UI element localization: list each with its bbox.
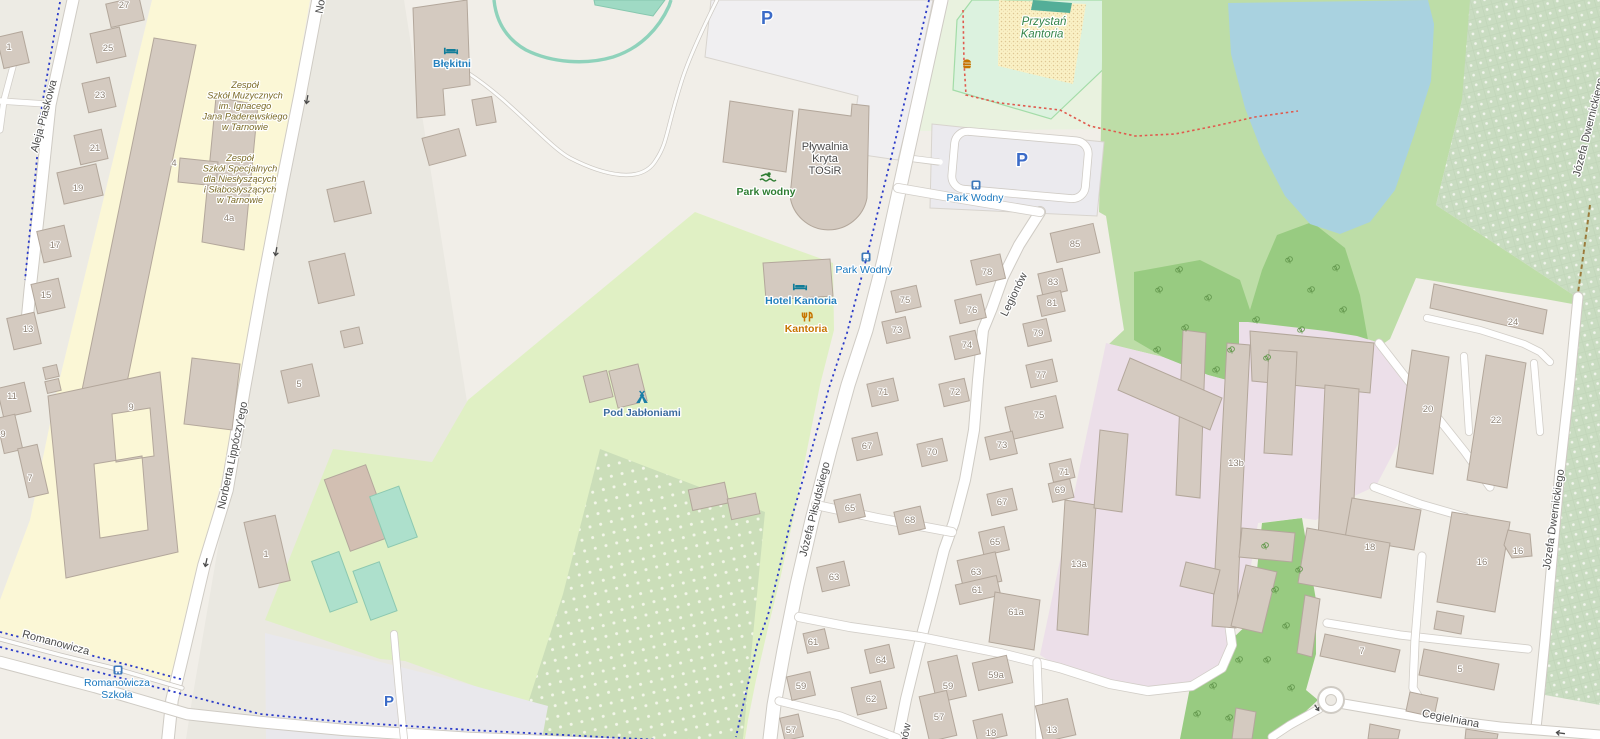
svg-text:Romanowicza: Romanowicza <box>84 677 150 689</box>
svg-text:24: 24 <box>1508 317 1519 328</box>
svg-text:59: 59 <box>796 681 807 692</box>
svg-text:11: 11 <box>7 391 17 402</box>
svg-text:18: 18 <box>986 728 997 739</box>
svg-text:59a: 59a <box>988 670 1005 681</box>
svg-text:w Tarnowie: w Tarnowie <box>217 195 263 205</box>
svg-text:73: 73 <box>997 440 1008 451</box>
svg-text:Błękitni: Błękitni <box>433 58 471 70</box>
svg-text:4: 4 <box>171 158 176 169</box>
svg-text:Przystań: Przystań <box>1022 16 1067 28</box>
svg-text:Hotel Kantoria: Hotel Kantoria <box>765 295 837 307</box>
svg-text:81: 81 <box>1047 298 1058 309</box>
svg-text:Kryta: Kryta <box>812 153 839 165</box>
svg-text:61a: 61a <box>1008 607 1025 618</box>
svg-text:57: 57 <box>786 725 797 736</box>
svg-text:70: 70 <box>927 447 938 458</box>
svg-text:61: 61 <box>808 637 819 648</box>
svg-text:57: 57 <box>934 712 945 723</box>
svg-text:im. Ignacego: im. Ignacego <box>219 101 272 111</box>
svg-text:61: 61 <box>972 585 983 596</box>
svg-text:85: 85 <box>1070 239 1081 250</box>
svg-text:21: 21 <box>90 143 101 154</box>
svg-text:1: 1 <box>6 42 11 53</box>
svg-text:23: 23 <box>95 90 106 101</box>
svg-text:67: 67 <box>997 497 1008 508</box>
svg-text:73: 73 <box>892 325 903 336</box>
svg-text:5: 5 <box>296 379 301 390</box>
svg-text:65: 65 <box>845 503 856 514</box>
svg-text:P: P <box>1016 150 1028 170</box>
svg-text:TOSiR: TOSiR <box>809 165 842 177</box>
svg-text:83: 83 <box>1048 277 1059 288</box>
svg-text:59: 59 <box>943 681 954 692</box>
svg-text:63: 63 <box>971 567 982 578</box>
svg-text:Szkół Specjalnych: Szkół Specjalnych <box>203 164 278 174</box>
svg-text:63: 63 <box>829 572 840 583</box>
svg-text:75: 75 <box>1034 410 1045 421</box>
svg-text:79: 79 <box>1033 328 1044 339</box>
svg-text:P: P <box>384 693 394 710</box>
svg-text:20: 20 <box>1423 404 1434 415</box>
svg-text:Park Wodny: Park Wodny <box>947 192 1005 204</box>
svg-text:7: 7 <box>27 473 32 484</box>
svg-text:Szkół Muzycznych: Szkół Muzycznych <box>207 91 283 101</box>
svg-text:Jana Paderewskiego: Jana Paderewskiego <box>201 112 287 122</box>
svg-text:75: 75 <box>900 295 911 306</box>
svg-text:Pływalnia: Pływalnia <box>802 141 849 153</box>
svg-text:13a: 13a <box>1071 559 1088 570</box>
svg-text:9: 9 <box>128 402 133 413</box>
svg-text:74: 74 <box>962 340 973 351</box>
svg-text:71: 71 <box>878 387 889 398</box>
svg-text:13b: 13b <box>1228 458 1244 469</box>
svg-text:13: 13 <box>1047 725 1058 736</box>
svg-text:Park wodny: Park wodny <box>737 186 796 198</box>
svg-text:15: 15 <box>41 290 52 301</box>
svg-text:77: 77 <box>1036 370 1047 381</box>
svg-text:Kantoria: Kantoria <box>1021 29 1064 41</box>
svg-text:22: 22 <box>1491 415 1502 426</box>
svg-text:13: 13 <box>23 324 34 335</box>
svg-text:9: 9 <box>0 429 5 440</box>
svg-text:67: 67 <box>862 441 873 452</box>
svg-text:7: 7 <box>1359 646 1364 657</box>
svg-text:65: 65 <box>990 537 1001 548</box>
svg-text:64: 64 <box>876 655 887 666</box>
svg-text:16: 16 <box>1477 557 1488 568</box>
svg-text:72: 72 <box>950 387 961 398</box>
svg-text:17: 17 <box>50 240 61 251</box>
svg-text:P: P <box>761 8 773 28</box>
svg-text:w Tarnowie: w Tarnowie <box>222 122 268 132</box>
svg-text:69: 69 <box>1055 485 1066 496</box>
svg-text:Park Wodny: Park Wodny <box>836 264 894 276</box>
svg-text:25: 25 <box>103 43 114 54</box>
svg-text:18: 18 <box>1365 542 1376 553</box>
svg-text:76: 76 <box>967 305 978 316</box>
svg-text:dla Niesłyszących: dla Niesłyszących <box>203 174 276 184</box>
svg-text:16: 16 <box>1513 546 1524 557</box>
svg-text:Zespół: Zespół <box>225 153 255 163</box>
svg-text:62: 62 <box>866 694 877 705</box>
svg-text:5: 5 <box>1457 664 1462 675</box>
svg-text:19: 19 <box>73 183 84 194</box>
svg-text:Kantoria: Kantoria <box>785 323 828 335</box>
svg-text:1: 1 <box>263 549 268 560</box>
svg-text:Szkoła: Szkoła <box>101 689 133 701</box>
svg-text:71: 71 <box>1059 467 1070 478</box>
svg-text:27: 27 <box>119 0 130 11</box>
svg-text:4a: 4a <box>224 213 235 224</box>
svg-text:78: 78 <box>982 267 993 278</box>
svg-text:Pod Jabłoniami: Pod Jabłoniami <box>603 407 681 419</box>
svg-text:Zespół: Zespół <box>230 80 260 90</box>
svg-text:68: 68 <box>905 515 916 526</box>
svg-text:i Słabosłyszących: i Słabosłyszących <box>204 185 277 195</box>
